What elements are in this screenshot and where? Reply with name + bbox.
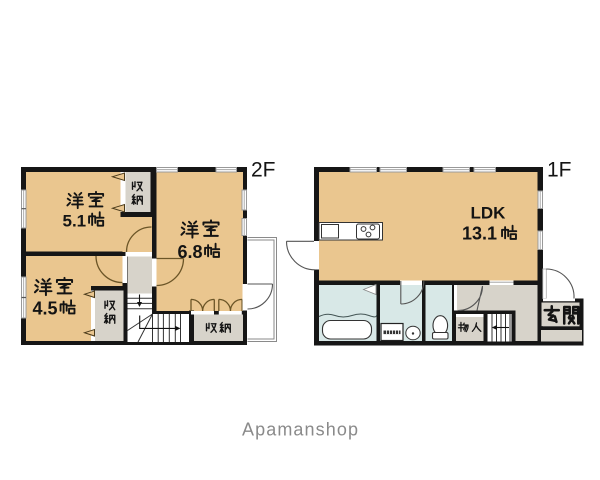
svg-text:13.1: 13.1 — [462, 224, 497, 244]
svg-text:5.1: 5.1 — [63, 212, 87, 231]
svg-text:6.8: 6.8 — [178, 242, 203, 262]
svg-text:Apamanshop: Apamanshop — [242, 420, 359, 440]
svg-text:4.5: 4.5 — [33, 299, 58, 319]
svg-text:LDK: LDK — [471, 204, 507, 223]
svg-text:1F: 1F — [547, 159, 572, 182]
svg-text:2F: 2F — [251, 159, 276, 182]
